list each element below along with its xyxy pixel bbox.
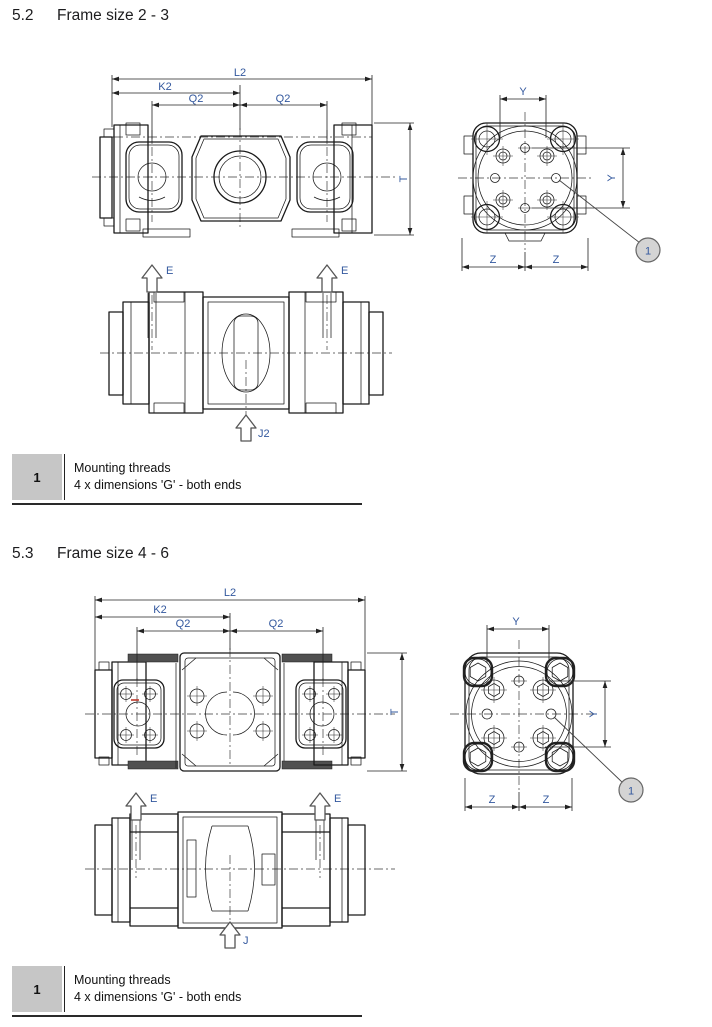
legend-key-badge: 1 — [12, 454, 62, 500]
end-view-frame-4-6: Y Y Z Z 1 — [450, 616, 643, 811]
dim-label-z-right: Z — [543, 794, 550, 806]
technical-drawings: L2 K2 Q2 Q2 T — [0, 0, 712, 1027]
dim-label-k2: K2 — [153, 604, 166, 616]
legend-key-badge: 1 — [12, 966, 62, 1012]
port-label-e-left: E — [150, 793, 157, 805]
side-view-frame-2-3: E E J2 — [100, 265, 392, 441]
port-plate-bolts-left — [118, 686, 158, 743]
legend-line-1: Mounting threads — [74, 460, 364, 477]
port-arrow-e-right — [310, 793, 330, 820]
heading-number: 5.3 — [12, 545, 57, 563]
port-label-j2: J2 — [258, 428, 270, 440]
dim-label-q2-left: Q2 — [189, 93, 204, 105]
dim-label-k2: K2 — [158, 81, 171, 93]
dim-label-y-side: Y — [588, 710, 600, 718]
port-arrow-e-left — [142, 265, 162, 292]
front-view-frame-2-3: L2 K2 Q2 Q2 T — [92, 67, 414, 237]
legend-line-2: 4 x dimensions 'G' - both ends — [74, 477, 364, 494]
dim-label-l2: L2 — [234, 67, 246, 79]
legend-line-2: 4 x dimensions 'G' - both ends — [74, 989, 364, 1006]
heading-number: 5.2 — [12, 7, 57, 25]
dim-label-q2-right: Q2 — [269, 618, 284, 630]
dim-label-y-top: Y — [512, 616, 520, 628]
legend-rule — [12, 503, 362, 505]
port-plate-bolts-right — [302, 686, 342, 743]
callout-1-number: 1 — [628, 786, 634, 798]
port-label-e-left: E — [166, 265, 173, 277]
dim-label-z-right: Z — [553, 254, 560, 266]
side-view-frame-4-6: E E J — [85, 793, 395, 948]
legend-text: Mounting threads 4 x dimensions 'G' - bo… — [64, 454, 364, 500]
callout-1-number: 1 — [645, 246, 651, 258]
dim-label-z-left: Z — [489, 794, 496, 806]
dim-label-q2-left: Q2 — [176, 618, 191, 630]
legend-5-3: 1 Mounting threads 4 x dimensions 'G' - … — [12, 966, 364, 1012]
port-label-j: J — [243, 935, 249, 947]
section-heading-5-3: 5.3 Frame size 4 - 6 — [12, 545, 169, 563]
heading-title: Frame size 2 - 3 — [57, 7, 169, 25]
port-arrow-e-left — [126, 793, 146, 820]
legend-5-2: 1 Mounting threads 4 x dimensions 'G' - … — [12, 454, 364, 500]
port-arrow-e-right — [317, 265, 337, 292]
port-arrow-j — [220, 922, 240, 948]
heading-title: Frame size 4 - 6 — [57, 545, 169, 563]
dim-label-t: T — [398, 175, 410, 182]
dim-label-t: T — [389, 708, 401, 715]
dim-label-y-side: Y — [606, 174, 618, 182]
port-label-e-right: E — [341, 265, 348, 277]
port-arrow-j2 — [236, 415, 256, 441]
dim-label-q2-right: Q2 — [276, 93, 291, 105]
port-label-e-right: E — [334, 793, 341, 805]
front-view-frame-4-6: L2 K2 Q2 Q2 T — [85, 587, 407, 771]
legend-text: Mounting threads 4 x dimensions 'G' - bo… — [64, 966, 364, 1012]
dim-label-z-left: Z — [490, 254, 497, 266]
dim-label-y-top: Y — [519, 86, 527, 98]
page: { "page": { "background": "#ffffff" }, "… — [0, 0, 712, 1027]
end-view-frame-2-3: Y Y Z Z 1 — [458, 86, 660, 271]
dim-label-l2: L2 — [224, 587, 236, 599]
section-heading-5-2: 5.2 Frame size 2 - 3 — [12, 7, 169, 25]
legend-rule — [12, 1015, 362, 1017]
legend-line-1: Mounting threads — [74, 972, 364, 989]
